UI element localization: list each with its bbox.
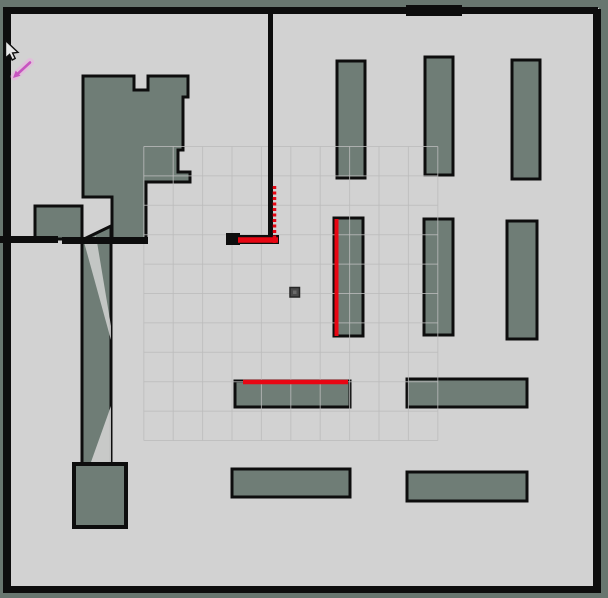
- wall-top-thick-segment: [406, 5, 462, 16]
- wall-under-column: [62, 237, 148, 244]
- pillar-top-1: [337, 61, 365, 178]
- shelf-bottom-right-2: [407, 472, 527, 501]
- unknown-region-left-protrusion: [35, 206, 82, 239]
- occupancy-grid-map[interactable]: [0, 0, 608, 598]
- wall-scan-corner-cap: [226, 233, 240, 245]
- shelf-bottom-mid-1: [235, 381, 350, 407]
- pillar-mid-2: [424, 219, 453, 335]
- wall-left-protrusion-link: [0, 236, 58, 243]
- rviz-viewport[interactable]: [0, 0, 608, 598]
- pillar-top-3: [512, 60, 540, 179]
- wall-outer-left: [3, 7, 11, 593]
- wall-center-vertical: [268, 12, 273, 242]
- unknown-region-bottom-left-block: [74, 464, 126, 527]
- shelf-bottom-mid-2: [232, 469, 350, 497]
- wall-outer-bottom: [4, 586, 601, 593]
- pillar-top-2: [425, 57, 453, 175]
- wall-outer-right: [593, 9, 601, 593]
- shelf-bottom-right-1: [407, 379, 527, 407]
- wall-outer-top: [4, 7, 598, 14]
- pillar-mid-3: [507, 221, 537, 339]
- robot-marker-center: [293, 291, 297, 295]
